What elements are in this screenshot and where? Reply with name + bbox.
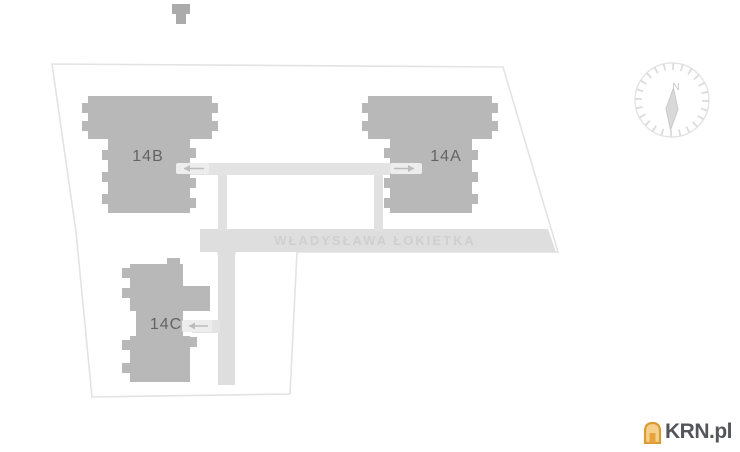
site-plan-canvas: WŁADYSŁAWA ŁOKIETKA 14B 14A <box>0 0 740 452</box>
compass-rose: N <box>635 63 709 137</box>
building-14B-label: 14B <box>132 148 163 165</box>
krn-logo[interactable]: KRN.pl <box>643 420 732 444</box>
building-14C-label: 14C <box>150 316 182 333</box>
house-icon <box>643 421 662 444</box>
street-name-label: WŁADYSŁAWA ŁOKIETKA <box>274 233 475 248</box>
logo-text: KRN.pl <box>665 420 732 444</box>
entrance-arrow-14B <box>176 163 209 174</box>
building-14A-label: 14A <box>430 148 461 165</box>
entrance-arrow-14C <box>182 320 212 332</box>
site-plan-svg: WŁADYSŁAWA ŁOKIETKA 14B 14A <box>0 0 740 452</box>
neighbor-building-fragment <box>172 4 190 24</box>
entrance-arrow-14A <box>390 163 422 174</box>
